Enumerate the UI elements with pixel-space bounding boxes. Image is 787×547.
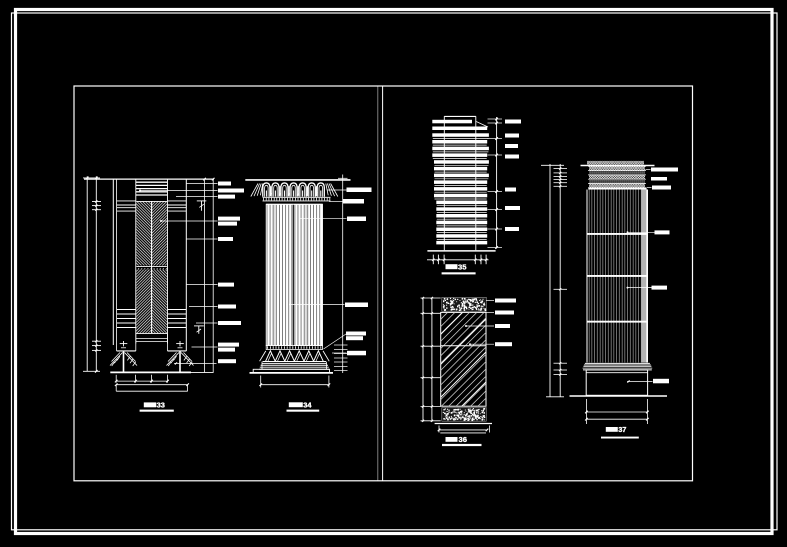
svg-text:36: 36 xyxy=(459,435,467,444)
svg-text:33: 33 xyxy=(157,401,165,410)
svg-text:34: 34 xyxy=(303,401,312,410)
svg-text:37: 37 xyxy=(618,425,626,434)
svg-text:35: 35 xyxy=(458,263,467,272)
